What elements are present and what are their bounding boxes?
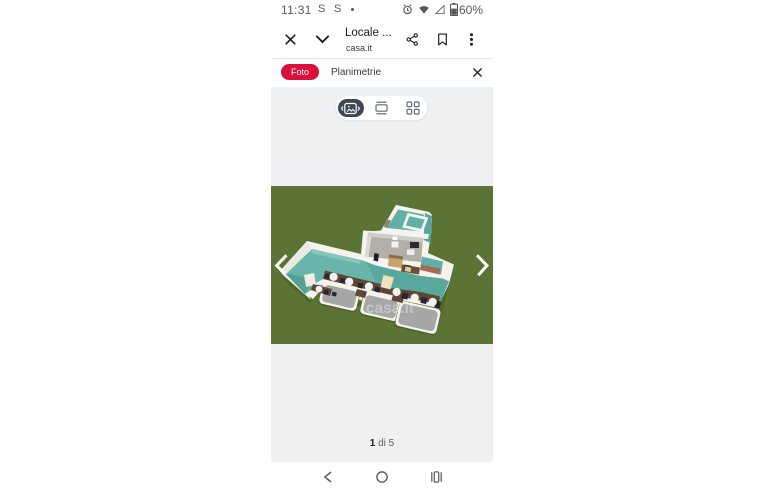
svg-text:casa.it: casa.it bbox=[366, 300, 414, 317]
